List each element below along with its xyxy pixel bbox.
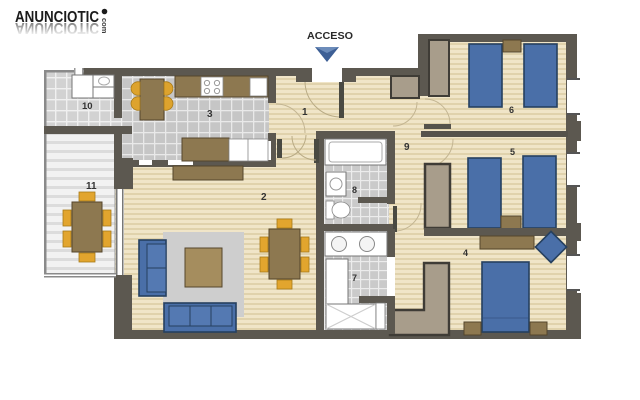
svg-text:7: 7 [352, 273, 357, 283]
svg-text:2: 2 [261, 192, 267, 203]
svg-text:3: 3 [207, 109, 213, 120]
svg-text:1: 1 [302, 107, 308, 118]
svg-text:10: 10 [82, 101, 93, 112]
svg-text:8: 8 [352, 185, 357, 195]
svg-text:6: 6 [509, 105, 514, 115]
svg-text:9: 9 [404, 142, 410, 153]
svg-text:ANUNCIOTIC: ANUNCIOTIC [15, 19, 99, 36]
svg-text:com: com [100, 18, 109, 34]
svg-text:5: 5 [510, 147, 515, 157]
svg-text:11: 11 [86, 181, 97, 192]
svg-text:4: 4 [463, 248, 468, 258]
svg-text:ACCESO: ACCESO [307, 30, 353, 42]
